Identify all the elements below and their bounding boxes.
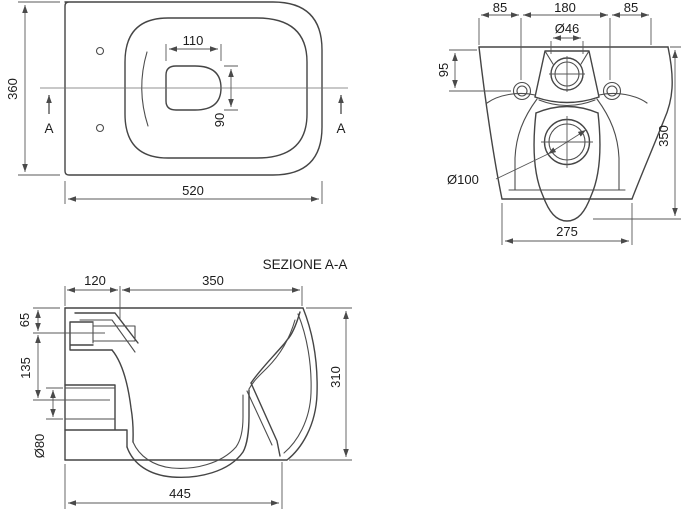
section-rim-wedge-outer [251, 383, 280, 456]
plan-mount-hole-top [97, 48, 104, 55]
section-inlet-bracket-lower [80, 320, 135, 352]
dim-plan-width: 520 [182, 183, 204, 198]
plan-dimensions: 360 110 90 520 [5, 2, 322, 204]
rear-body-left-edge [479, 47, 502, 199]
rear-bowl-hump [536, 107, 598, 114]
rear-fixing-hole-left-outer [514, 83, 531, 100]
rear-body-right-edge [632, 47, 672, 199]
dim-rear-outlet-dia: Ø100 [447, 172, 479, 187]
dim-section-back-zone: 120 [84, 273, 106, 288]
dim-section-seat-zone: 350 [202, 273, 224, 288]
dim-section-top-to-inlet: 65 [17, 313, 32, 327]
plan-view: A A 360 110 90 520 [5, 2, 348, 204]
dim-section-inlet-to-outlet: 135 [18, 357, 33, 379]
plan-body-outline [65, 2, 322, 175]
plan-mount-hole-bottom [97, 125, 104, 132]
dim-rear-inlet-height: 95 [436, 63, 451, 77]
section-rim-wedge-inner [247, 391, 272, 445]
dim-rear-hole-spacing: 180 [554, 0, 576, 15]
rear-shoulder-curve-left [487, 93, 535, 103]
rear-fixing-hole-left-inner [517, 86, 527, 96]
dim-rear-offset-right: 85 [624, 0, 638, 15]
plan-view-outline [40, 2, 348, 175]
dim-section-outlet-dia: Ø80 [32, 434, 47, 459]
rear-shoulder-curve-right [599, 93, 647, 103]
section-marker-a-left: A [44, 121, 53, 136]
section-sump-outer [127, 390, 249, 477]
section-bowl-back-curve-inner [249, 320, 295, 389]
rear-outlet-leader-line [496, 154, 548, 179]
section-marker-a-right: A [336, 121, 345, 136]
plan-section-markers: A A [44, 95, 345, 136]
technical-drawing-canvas: A A 360 110 90 520 [0, 0, 690, 518]
dim-plan-bowl-depth: 90 [212, 113, 227, 127]
rear-view-outline [479, 47, 672, 221]
wc-technical-drawing: A A 360 110 90 520 [0, 0, 690, 518]
section-front-inner-wall [284, 314, 311, 453]
plan-seat-arc [142, 52, 148, 126]
dim-rear-offset-left: 85 [493, 0, 507, 15]
section-outlet-dia-extension-lines [46, 388, 63, 419]
section-outlet-spigot [65, 385, 127, 447]
section-sump-inner [133, 395, 243, 468]
dim-rear-bottom-width: 275 [556, 224, 578, 239]
dim-rear-inlet-dia: Ø46 [555, 21, 580, 36]
dim-section-bottom-depth: 445 [169, 486, 191, 501]
rear-inlet-crosshair [549, 56, 585, 92]
dim-rear-total-height: 350 [656, 125, 671, 147]
rear-fixing-hole-right-outer [604, 83, 621, 100]
section-view: SEZIONE A-A 120 350 [17, 257, 352, 509]
rear-fixing-hole-right-inner [607, 86, 617, 96]
section-inlet-bracket-upper [75, 313, 138, 343]
section-top-extension-lines [65, 286, 302, 319]
rear-dimensions: 85 180 85 Ø46 95 350 Ø100 275 [436, 0, 681, 245]
section-title: SEZIONE A-A [263, 257, 348, 272]
section-bowl-back-curve [251, 312, 300, 383]
dim-plan-depth: 360 [5, 78, 20, 100]
section-outlet-bore-lines [65, 388, 115, 419]
dim-section-height: 310 [328, 366, 343, 388]
plan-depth-extension-lines [18, 2, 60, 175]
dim-plan-bowl-width: 110 [183, 33, 204, 48]
rear-view: 85 180 85 Ø46 95 350 Ø100 275 [436, 0, 681, 245]
